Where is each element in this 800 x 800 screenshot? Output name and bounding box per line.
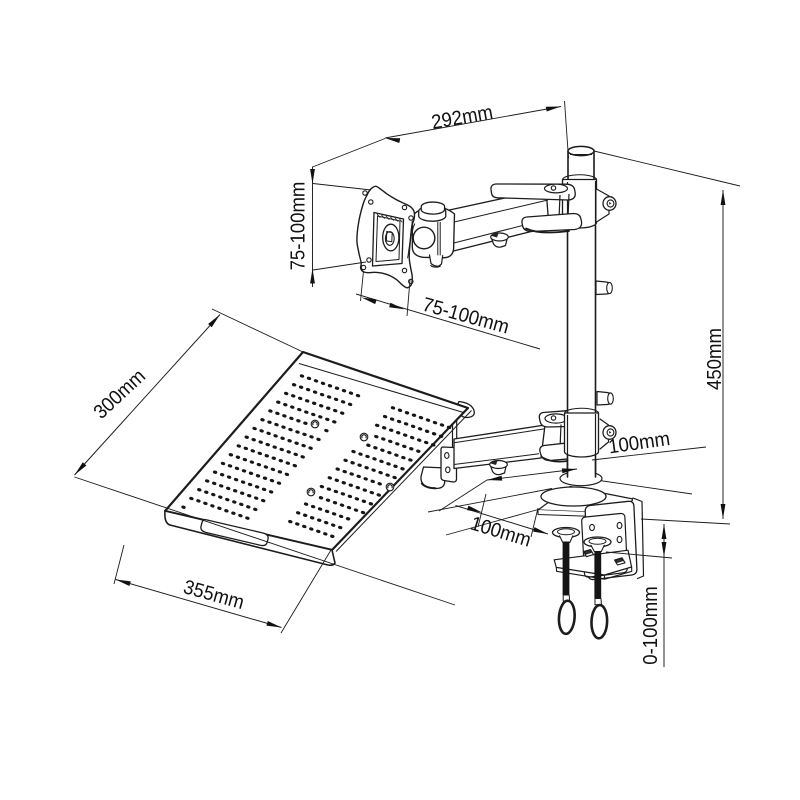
svg-text:355mm: 355mm: [181, 577, 247, 615]
svg-text:100mm: 100mm: [607, 428, 671, 458]
svg-text:450mm: 450mm: [705, 328, 727, 390]
svg-text:75-100mm: 75-100mm: [420, 294, 511, 339]
svg-text:100mm: 100mm: [468, 513, 534, 552]
svg-text:0-100mm: 0-100mm: [641, 586, 663, 665]
svg-text:300mm: 300mm: [90, 366, 150, 424]
svg-text:75-100mm: 75-100mm: [288, 182, 310, 271]
svg-text:292mm: 292mm: [430, 102, 495, 134]
